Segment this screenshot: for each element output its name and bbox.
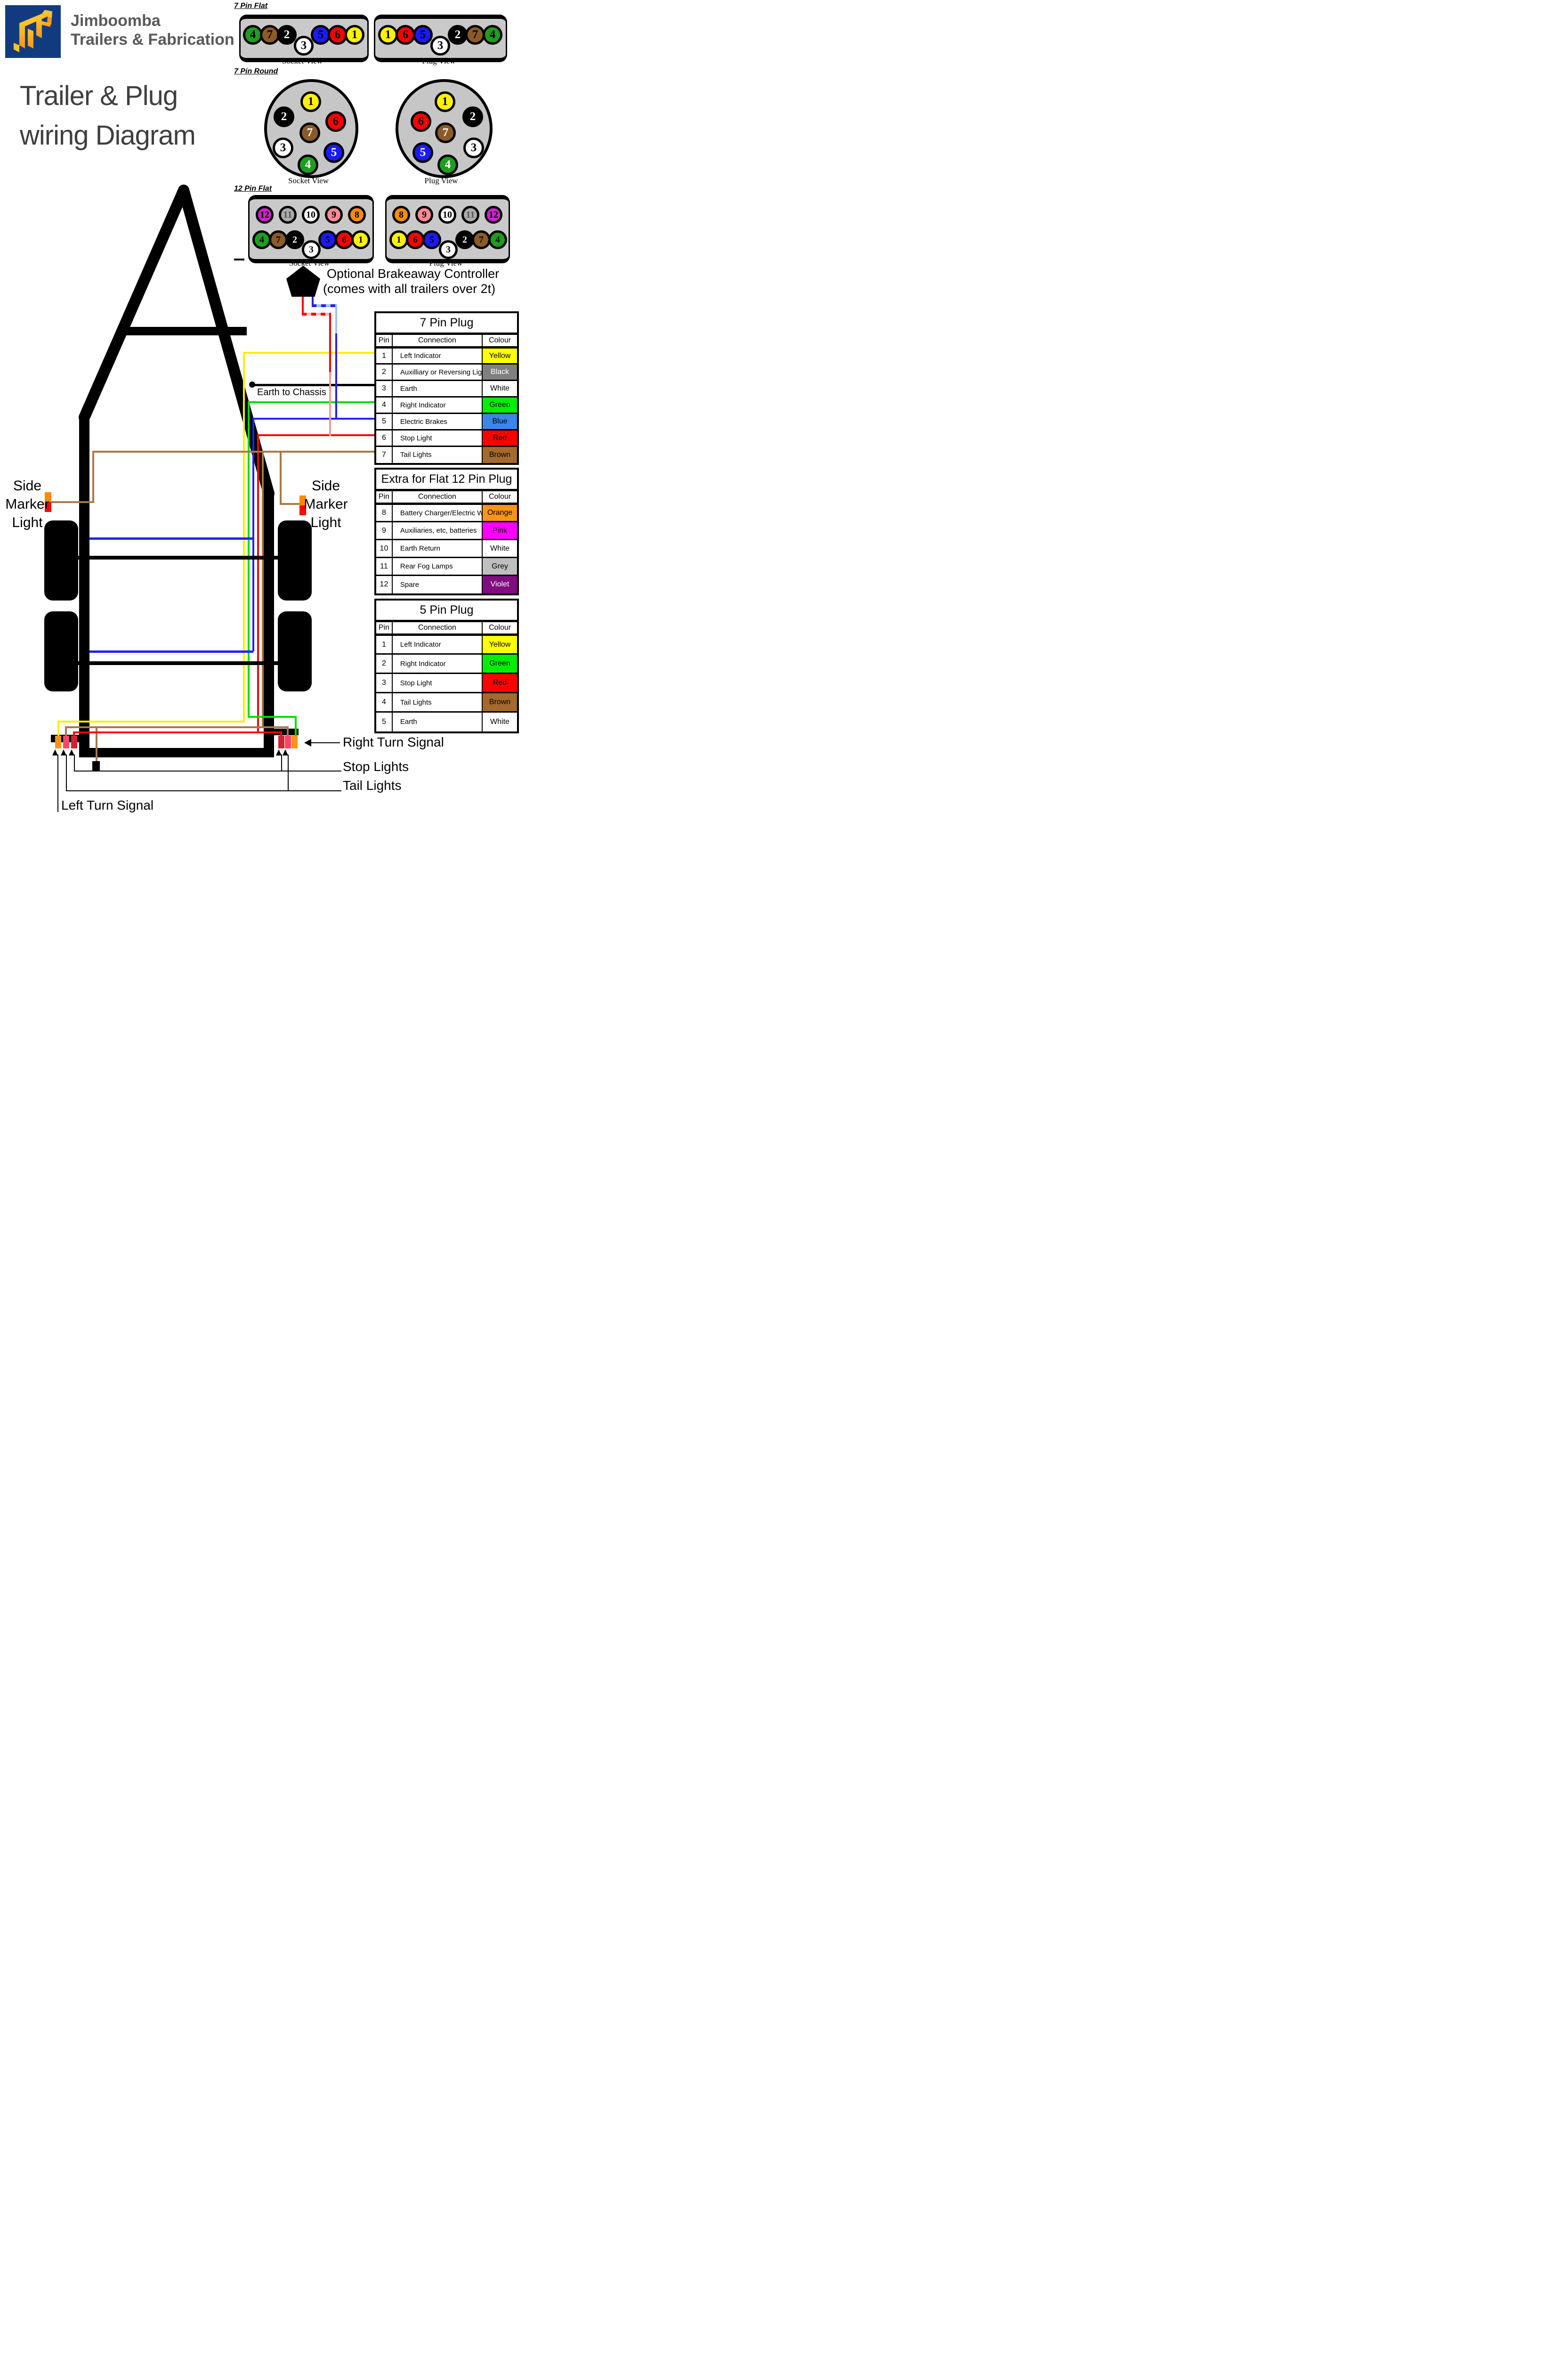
wire-green-to-table <box>248 401 374 403</box>
table-title: 5 Pin Plug <box>376 601 517 622</box>
wire-axle-earth-2 <box>76 661 280 665</box>
table-row: 1Left IndicatorYellow <box>376 635 517 654</box>
wire-stop-tail-right <box>281 755 282 771</box>
table-row: 3EarthWhite <box>376 381 517 397</box>
pin-cell: 10 <box>376 540 392 558</box>
wire-brakeaway-blue-striped <box>312 304 337 307</box>
right-stop-light <box>278 736 284 748</box>
pin-cell: 1 <box>376 635 392 654</box>
colour-cell: White <box>482 540 517 558</box>
column-header-pin: Pin <box>376 335 392 348</box>
colour-cell: Grey <box>482 558 517 576</box>
colour-cell: Brown <box>482 447 517 463</box>
right-tail-light <box>285 736 291 748</box>
pin-cell: 11 <box>376 558 392 576</box>
pin-cell: 2 <box>376 364 392 381</box>
pin-cell: 3 <box>376 674 392 693</box>
right-turn-signal-label: Right Turn Signal <box>343 735 444 750</box>
colour-cell: Yellow <box>482 348 517 364</box>
pin-cell: 2 <box>376 654 392 674</box>
pin-cell: 8 <box>376 504 392 522</box>
pin-cell: 1 <box>376 348 392 364</box>
table-row: 9Auxiliaries, etc, batteriesPink <box>376 522 517 540</box>
wire-brown-right-marker-v <box>280 451 282 505</box>
table-row: 2Right IndicatorGreen <box>376 654 517 674</box>
connection-cell: Electric Brakes <box>392 414 482 430</box>
side-marker-label-right: Side Marker Light <box>301 477 350 532</box>
up-arrow-icon <box>69 749 74 755</box>
connection-cell: Earth <box>392 712 482 731</box>
table-row: 8Battery Charger/Electric WinchOrange <box>376 504 517 522</box>
earth-dot <box>249 382 255 388</box>
connection-cell: Left Indicator <box>392 635 482 654</box>
table-row: 10Earth ReturnWhite <box>376 540 517 558</box>
left-arrow-icon <box>304 739 311 747</box>
pin-cell: 3 <box>376 381 392 397</box>
wire-axle-earth-1 <box>76 556 280 560</box>
wire-yellow-to-table <box>243 352 374 354</box>
colour-cell: Orange <box>482 504 517 522</box>
right-turn-light <box>291 736 298 748</box>
colour-cell: Yellow <box>482 635 517 654</box>
colour-cell: Pink <box>482 522 517 540</box>
wire-brown-left-marker-h <box>51 501 94 503</box>
pin-cell: 9 <box>376 522 392 540</box>
colour-cell: Violet <box>482 576 517 593</box>
connection-cell: Earth <box>392 381 482 397</box>
stop-lights-label: Stop Lights <box>343 759 409 774</box>
wire-brakeaway-red-striped <box>302 313 331 316</box>
connection-cell: Tail Lights <box>392 447 482 463</box>
wire-blue-to-table <box>252 418 374 420</box>
wire-yellow-bottom-h <box>57 721 245 723</box>
connection-cell: Stop Light <box>392 674 482 693</box>
colour-cell: White <box>482 712 517 731</box>
left-tail-light <box>63 736 69 748</box>
wire-tail-tail-right <box>288 755 289 791</box>
colour-cell: Green <box>482 397 517 414</box>
wire-tail-line <box>66 790 341 791</box>
up-arrow-icon <box>61 749 66 755</box>
wire-brown-to-table <box>92 451 374 453</box>
connection-cell: Right Indicator <box>392 654 482 674</box>
pin-cell: 4 <box>376 693 392 712</box>
connection-cell: Earth Return <box>392 540 482 558</box>
wire-red-to-table <box>257 434 374 436</box>
side-marker-label-left: Side Marker Light <box>4 477 51 532</box>
table-row: 5Electric BrakesBlue <box>376 414 517 430</box>
wire-brakeaway-red-drop <box>302 297 304 315</box>
connection-cell: Stop Light <box>392 430 482 447</box>
column-header-pin: Pin <box>376 622 392 635</box>
connection-cell: Left Indicator <box>392 348 482 364</box>
colour-cell: Black <box>482 364 517 381</box>
table-row: 6Stop LightRed <box>376 430 517 447</box>
wire-red-vertical <box>257 434 259 733</box>
left-turn-light <box>55 736 61 748</box>
table-row: 12SpareViolet <box>376 576 517 593</box>
up-arrow-icon <box>276 749 282 755</box>
table-row: 7Tail LightsBrown <box>376 447 517 463</box>
trailer-wiring-diagram-page: Jimboomba Trailers & Fabrication Trailer… <box>0 0 523 818</box>
table-title: Extra for Flat 12 Pin Plug <box>376 470 517 491</box>
column-header-connection: Connection <box>392 335 482 348</box>
wire-brown-bottom-h <box>65 726 289 728</box>
pin-cell: 12 <box>376 576 392 593</box>
wire-axle-blue-1 <box>89 537 253 540</box>
colour-cell: Blue <box>482 414 517 430</box>
table-row: 1Left IndicatorYellow <box>376 348 517 364</box>
wire-stub-black <box>92 761 100 771</box>
up-arrow-icon <box>283 749 288 755</box>
colour-cell: Green <box>482 654 517 674</box>
wire-axle-blue-2 <box>89 650 253 653</box>
tail-lights-label: Tail Lights <box>343 778 402 793</box>
colour-cell: White <box>482 381 517 397</box>
column-header-colour: Colour <box>482 491 517 504</box>
left-stop-light <box>71 736 77 748</box>
wire-rightturn-line <box>311 742 340 743</box>
connection-cell: Right Indicator <box>392 397 482 414</box>
connection-cell: Spare <box>392 576 482 593</box>
pin-cell: 7 <box>376 447 392 463</box>
pin-cell: 4 <box>376 397 392 414</box>
table-row: 4Right IndicatorGreen <box>376 397 517 414</box>
wire-stop-line <box>74 771 341 771</box>
table-7-pin-plug: 7 Pin PlugPinConnectionColour1Left Indic… <box>374 311 519 465</box>
connection-cell: Tail Lights <box>392 693 482 712</box>
colour-cell: Red <box>482 674 517 693</box>
colour-cell: Brown <box>482 693 517 712</box>
wire-red-bottom-h <box>73 731 282 733</box>
up-arrow-icon <box>52 749 58 755</box>
table-row: 3Stop LightRed <box>376 674 517 693</box>
wire-brown-right-marker-h <box>280 503 301 505</box>
wire-brown-left-marker-v <box>92 451 94 503</box>
colour-cell: Red <box>482 430 517 447</box>
wire-brakeaway-salmon-down <box>329 372 331 436</box>
wire-green-bottom-h <box>248 716 297 718</box>
table-row: 2Auxilliary or Reversing LightBlack <box>376 364 517 381</box>
wire-brakeaway-blue-down <box>335 333 337 420</box>
wire-green-vertical <box>248 401 250 718</box>
connection-cell: Battery Charger/Electric Winch <box>392 504 482 522</box>
wire-brakeaway-lightblue-down <box>335 304 337 334</box>
wire-yellow-bottom-v <box>57 721 59 738</box>
column-header-pin: Pin <box>376 491 392 504</box>
connection-cell: Auxilliary or Reversing Light <box>392 364 482 381</box>
table-title: 7 Pin Plug <box>376 313 517 335</box>
table-5-pin-plug: 5 Pin PlugPinConnectionColour1Left Indic… <box>374 599 519 733</box>
connection-cell: Rear Fog Lamps <box>392 558 482 576</box>
wire-blue-vertical <box>252 418 254 651</box>
pin-cell: 5 <box>376 414 392 430</box>
column-header-connection: Connection <box>392 622 482 635</box>
pin-cell: 6 <box>376 430 392 447</box>
wire-brakeaway-red-down <box>329 313 331 372</box>
table-row: 11Rear Fog LampsGrey <box>376 558 517 576</box>
wire-tail-tail-left <box>66 755 67 791</box>
table-row: 5EarthWhite <box>376 712 517 731</box>
wire-leftturn-tail <box>57 755 58 812</box>
column-header-colour: Colour <box>482 622 517 635</box>
connection-cell: Auxiliaries, etc, batteries <box>392 522 482 540</box>
pin-cell: 5 <box>376 712 392 731</box>
wire-brown-vertical <box>262 451 264 728</box>
column-header-connection: Connection <box>392 491 482 504</box>
wire-green-bottom-v <box>295 716 297 738</box>
wire-stop-tail-left <box>74 755 75 771</box>
column-header-colour: Colour <box>482 335 517 348</box>
table-row: 4Tail LightsBrown <box>376 693 517 712</box>
left-turn-signal-label: Left Turn Signal <box>61 798 154 813</box>
earth-to-chassis-label: Earth to Chassis <box>257 387 326 398</box>
table-extra-12-pin-plug: Extra for Flat 12 Pin PlugPinConnectionC… <box>374 468 519 595</box>
wire-earth-to-table <box>251 384 374 386</box>
